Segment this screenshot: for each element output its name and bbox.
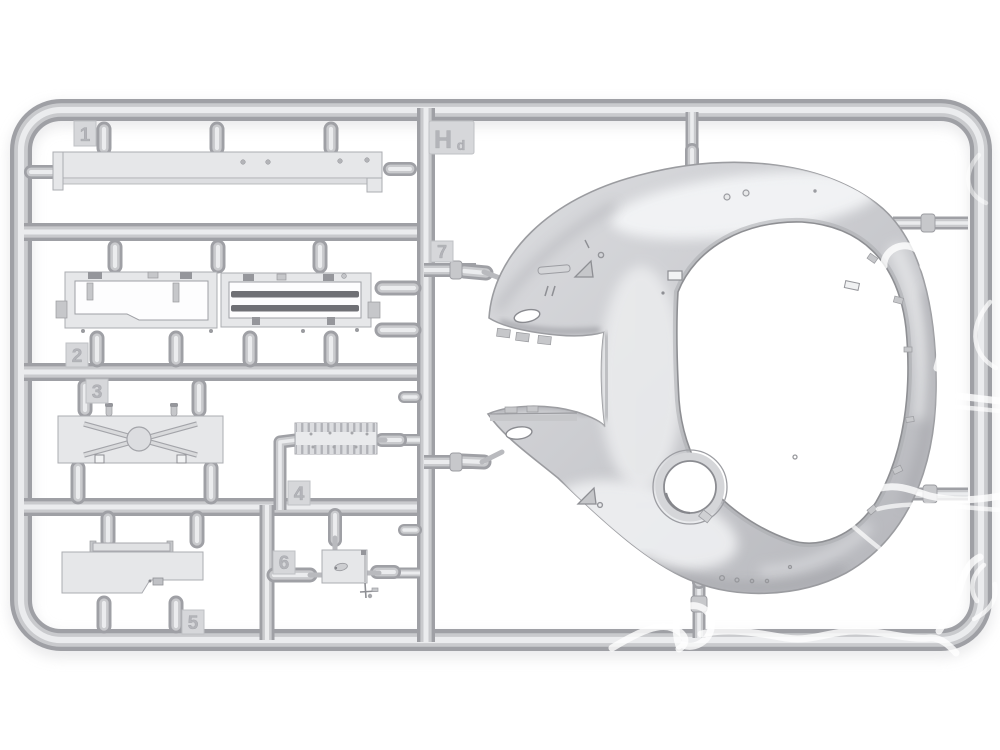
dome-hatch-hole (653, 450, 727, 524)
dome-shell-part (488, 159, 936, 594)
tab-5: 5 (182, 610, 204, 634)
sprue-product-photo: 1 2 3 4 5 6 7 H d (0, 0, 1000, 750)
tab-4: 4 (288, 481, 310, 505)
tab-sprue-code: H d (429, 121, 474, 154)
sprue-photo-svg: 1 2 3 4 5 6 7 H d (0, 0, 1000, 750)
tab-7: 7 (431, 241, 453, 262)
tab-3: 3 (86, 379, 108, 403)
svg-text:6: 6 (279, 553, 290, 574)
part-5-stepped-plate (62, 541, 203, 593)
louver-slat (231, 305, 359, 312)
part-3-pins (105, 403, 178, 416)
part-2-frame-panels (56, 272, 380, 333)
svg-text:5: 5 (188, 613, 199, 634)
svg-text:3: 3 (92, 382, 103, 403)
part-1-strip (53, 152, 382, 192)
part-4-ribbed-grille (295, 423, 377, 454)
tab-1: 1 (74, 121, 96, 146)
sprue-code-main: H (434, 126, 452, 154)
svg-text:1: 1 (80, 125, 91, 146)
tab-6: 6 (273, 551, 295, 574)
svg-text:4: 4 (294, 484, 305, 505)
slot-detail (668, 271, 682, 280)
tab-2: 2 (66, 343, 88, 367)
svg-text:7: 7 (437, 242, 447, 262)
sprue-code-sub: d (457, 137, 466, 153)
part-6-bracket (360, 583, 378, 598)
louver-slat (231, 291, 359, 298)
svg-text:2: 2 (72, 346, 83, 367)
